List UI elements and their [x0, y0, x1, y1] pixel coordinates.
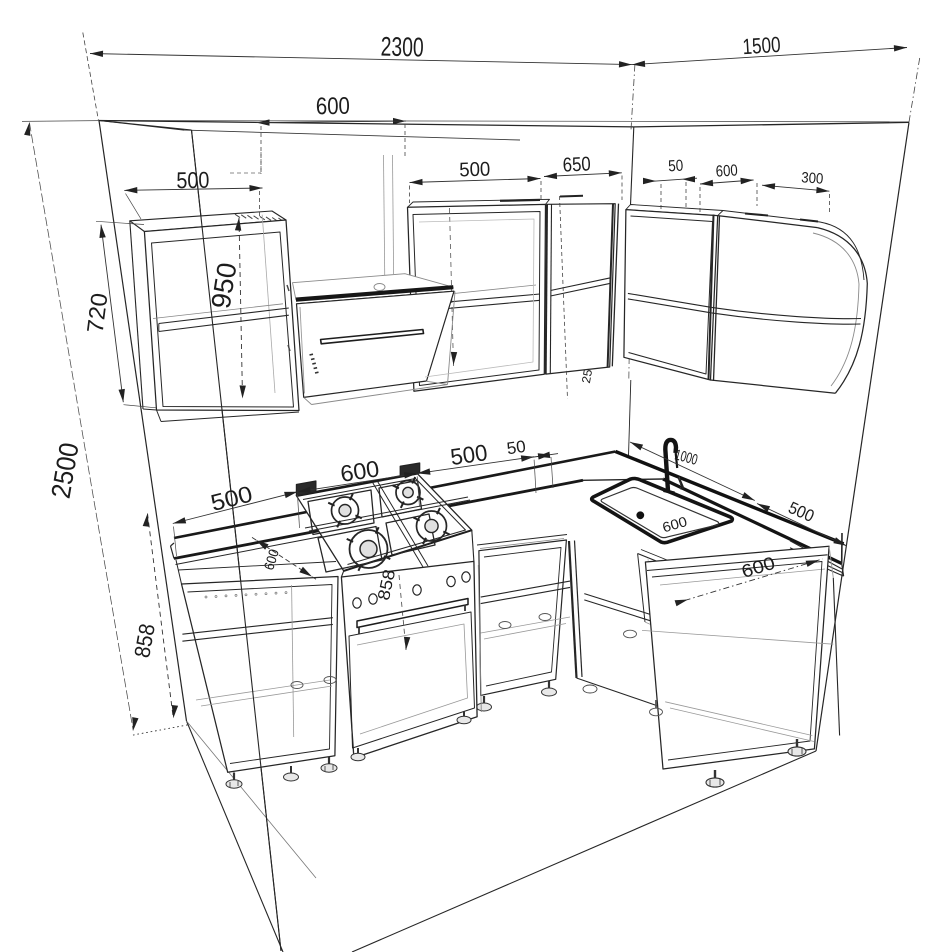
svg-text:600: 600 [316, 93, 350, 121]
svg-text:2300: 2300 [380, 32, 424, 63]
svg-text:500: 500 [176, 167, 209, 194]
svg-text:650: 650 [562, 153, 591, 176]
svg-text:50: 50 [506, 437, 527, 458]
svg-text:500: 500 [449, 439, 489, 470]
svg-text:300: 300 [801, 169, 824, 187]
svg-text:1500: 1500 [742, 32, 781, 59]
svg-text:720: 720 [82, 292, 113, 335]
svg-text:600: 600 [715, 162, 738, 180]
svg-text:50: 50 [668, 158, 684, 176]
svg-text:25: 25 [579, 368, 595, 385]
svg-text:500: 500 [459, 158, 491, 181]
